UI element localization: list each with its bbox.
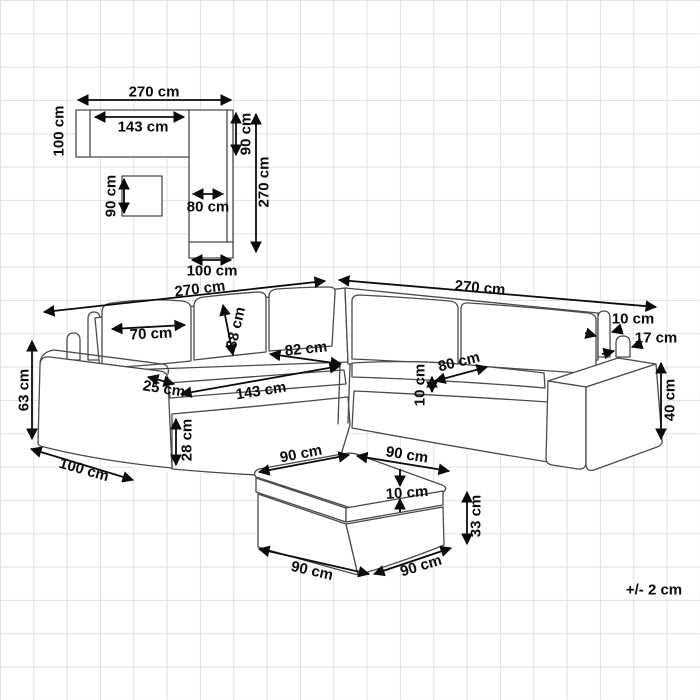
diagram-canvas [0,0,700,700]
dim-ottoman-height: 33 cm [469,495,484,538]
dim-ottoman-cushion: 10 cm [385,484,428,502]
dim-plan-arm-seat: 80 cm [187,200,230,215]
dim-seat-height: 63 cm [17,369,32,412]
dim-plan-corner-back: 90 cm [239,113,254,156]
tolerance-note: +/- 2 cm [626,583,682,598]
dim-armrest-back-width: 17 cm [635,331,678,346]
ottoman-3d-drawing [255,453,446,575]
dim-armrest-height: 40 cm [663,379,678,422]
dim-sofa-right-width: 270 cm [454,278,506,297]
dimension-diagram: 270 cm 100 cm 143 cm 90 cm 270 cm 90 cm … [0,0,700,700]
dim-seat-depth-left: 82 cm [284,339,328,358]
dim-plan-arm-depth: 100 cm [187,264,238,279]
dim-plan-ottoman-size: 90 cm [104,175,119,218]
dim-back-cushion-width: 70 cm [129,325,172,342]
sofa-3d-drawing [38,286,662,479]
dim-plan-left-depth: 100 cm [52,106,67,157]
dim-plan-total-width: 270 cm [129,85,180,100]
dim-cushion-thickness: 10 cm [413,364,428,407]
dim-plan-seat-width: 143 cm [118,120,169,135]
dim-base-height: 28 cm [180,419,195,462]
dim-plan-total-depth: 270 cm [257,157,272,208]
dim-backrest-thickness: 10 cm [612,312,655,327]
